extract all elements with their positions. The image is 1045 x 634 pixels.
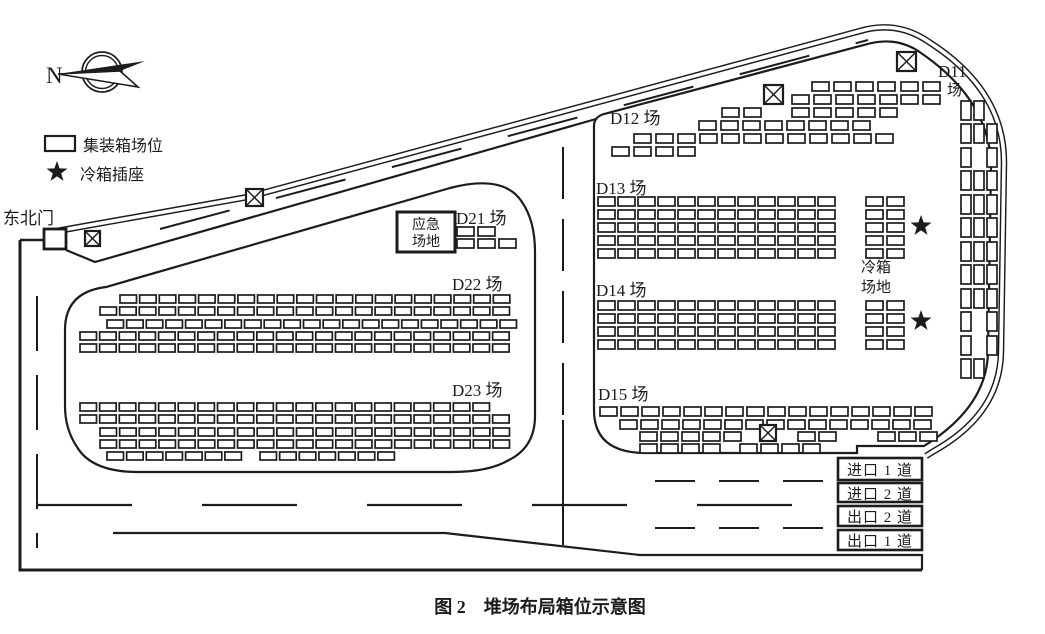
container-slot [237,403,254,411]
container-slot [974,124,984,143]
container-slot [620,420,637,429]
container-slot [139,344,156,352]
container-slot [830,420,847,429]
container-slot [618,223,635,232]
container-slot [179,428,196,436]
container-slot [658,327,675,336]
container-slot [316,440,333,448]
container-slot [100,428,117,436]
container-slot [758,327,775,336]
container-slot [277,332,294,340]
container-slot [335,332,352,340]
container-slot [641,420,658,429]
container-slot [316,332,333,340]
container-slot [974,265,984,284]
container-slot [453,332,470,340]
yard-label-d15: D15 场 [598,385,649,404]
container-slot [277,307,294,315]
container-slot [961,101,971,120]
container-slot [738,327,755,336]
container-slot [738,314,755,323]
container-slot [375,440,392,448]
reefer-area-label-line2: 场地 [861,279,891,296]
container-slot [277,428,294,436]
emergency-area-label-line1: 应急 [412,216,440,233]
container-slot [434,344,451,352]
container-slot [493,344,510,352]
container-slot [987,265,997,284]
container-slot-grids [80,82,997,460]
container-slot [178,403,195,411]
container-slot [612,147,629,156]
container-slot [698,301,715,310]
container-slot [866,327,883,336]
container-slot [473,307,490,315]
container-slot [778,301,795,310]
container-slot [818,236,835,245]
container-slot [836,108,853,117]
container-slot [139,307,156,315]
container-slot [698,327,715,336]
container-slot [658,301,675,310]
container-slot [454,295,471,303]
container-slot [798,236,815,245]
container-slot [923,95,940,104]
container-slot [478,227,495,236]
northeast-gate-label: 东北门 [3,209,54,228]
container-slot [119,332,136,340]
container-slot [355,440,372,448]
container-slot [434,440,451,448]
container-slot [662,420,679,429]
container-slot [878,82,895,91]
container-slot [402,320,419,328]
container-slot [987,289,997,308]
container-slot [901,95,918,104]
container-slot [887,314,904,323]
container-slot [434,415,451,423]
container-slot [395,295,412,303]
container-slot [638,314,655,323]
container-slot [915,407,932,416]
container-slot [887,249,904,258]
container-slot [974,289,984,308]
yard-label-d14: D14 场 [596,281,647,300]
container-slot [598,314,615,323]
container-slot [758,197,775,206]
container-slot [987,218,997,237]
container-slot [198,307,215,315]
container-slot [375,415,392,423]
container-slot [119,344,136,352]
container-slot [323,320,340,328]
container-slot [499,239,516,248]
container-slot [218,415,235,423]
yard-label-d23: D23 场 [452,381,503,400]
container-slot [178,332,195,340]
container-slot [866,340,883,349]
container-slot [434,295,451,303]
container-slot [257,403,274,411]
container-slot [218,307,235,315]
container-slot [778,314,795,323]
container-slot [974,359,984,378]
container-slot [454,307,471,315]
container-slot [100,403,117,411]
container-slot [277,344,294,352]
container-slot [818,327,835,336]
container-slot [722,134,739,143]
container-slot [818,210,835,219]
yard-boxes-d13 [598,197,835,258]
yard-layout-figure: 进口 1 道 进口 2 道 出口 2 道 出口 1 道 N 集装箱场位 冷箱插座… [0,0,1045,634]
container-slot [854,134,871,143]
container-slot [678,223,695,232]
container-slot [810,134,827,143]
container-slot [355,332,372,340]
container-slot [638,236,655,245]
checkpoint-crossed-box-icon [246,189,263,206]
container-slot [914,420,931,429]
container-slot [80,403,97,411]
container-slot [159,344,176,352]
container-slot [758,301,775,310]
container-slot [355,403,372,411]
container-slot [139,403,156,411]
compass-rose: N [46,52,145,92]
container-slot [987,242,997,261]
container-slot [787,121,804,130]
container-slot [818,197,835,206]
container-slot [858,108,875,117]
container-slot [493,295,510,303]
container-slot [453,415,470,423]
container-slot [316,428,333,436]
container-slot [179,307,196,315]
container-slot [718,236,735,245]
container-slot [120,295,137,303]
container-slot [600,407,617,416]
container-slot [678,236,695,245]
compass-arrow-light-blade [58,71,138,87]
container-slot [798,223,815,232]
container-slot [961,148,971,167]
container-slot [778,236,795,245]
container-slot [277,415,294,423]
container-slot [782,444,799,453]
container-slot [225,320,242,328]
yard-label-d21: D21 场 [456,209,507,228]
container-slot [473,332,490,340]
container-slot [382,320,399,328]
checkpoint-crossed-box-icon [760,425,776,441]
container-slot [355,344,372,352]
yard-label-d12: D12 场 [610,109,661,128]
container-slot [186,452,203,460]
container-slot [277,403,294,411]
container-slot [500,320,517,328]
container-slot [461,320,478,328]
container-slot [834,82,851,91]
container-slot [718,340,735,349]
checkpoint-crossed-box-icon [764,85,783,104]
container-slot [640,444,657,453]
container-slot [961,336,971,355]
container-slot [100,440,117,448]
container-slot [658,340,675,349]
container-slot [788,420,805,429]
container-slot [792,108,809,117]
container-slot [355,428,372,436]
container-slot [618,340,635,349]
lane-label-in2: 进口 2 道 [847,486,913,503]
container-slot [894,407,911,416]
yard-boxes-d14 [598,301,835,349]
container-slot [744,134,761,143]
container-slot [317,295,334,303]
northeast-gate-box [44,229,66,249]
container-slot [159,332,176,340]
container-slot [260,452,277,460]
container-slot [920,432,937,441]
container-slot [678,327,695,336]
container-slot [722,108,739,117]
container-slot [758,340,775,349]
container-slot [703,444,720,453]
container-slot [738,210,755,219]
container-slot [375,344,392,352]
container-slot [434,332,451,340]
legend-star-icon [47,161,68,181]
container-slot [718,197,735,206]
container-slot [414,440,431,448]
container-slot [473,403,490,411]
container-slot [718,314,735,323]
container-slot [768,407,785,416]
yard-boxes-d21 [457,227,516,248]
container-slot [718,210,735,219]
container-slot [758,223,775,232]
container-slot [100,307,117,315]
container-slot [866,197,883,206]
container-slot [453,344,470,352]
container-slot [887,236,904,245]
legend-container-label: 集装箱场位 [83,137,163,155]
container-slot [866,236,883,245]
container-slot [394,403,411,411]
container-slot [335,344,352,352]
container-slot [798,301,815,310]
container-slot [258,295,275,303]
container-slot [186,320,203,328]
container-slot [493,332,510,340]
container-slot [316,307,333,315]
container-slot [866,223,883,232]
container-slot [683,420,700,429]
container-slot [961,124,971,143]
reefer-socket-star-icon [911,215,932,235]
container-slot [319,452,336,460]
container-slot [395,307,412,315]
container-slot [765,121,782,130]
container-slot [961,171,971,190]
container-slot [218,440,235,448]
container-slot [296,403,313,411]
container-slot [743,121,760,130]
container-slot [237,344,254,352]
container-slot [618,197,635,206]
container-slot [80,332,97,340]
legend: 集装箱场位 冷箱插座 [45,136,163,184]
container-slot [179,295,196,303]
container-slot [218,295,235,303]
container-slot [414,344,431,352]
container-slot [974,101,984,120]
container-slot [414,307,431,315]
container-slot [778,327,795,336]
container-slot [638,327,655,336]
container-slot [358,452,375,460]
container-slot [80,344,97,352]
container-slot [159,415,176,423]
checkpoint-crossed-box-icon [85,231,100,246]
container-slot [678,147,695,156]
container-slot [893,420,910,429]
container-slot [139,332,156,340]
container-slot [618,301,635,310]
container-slot [296,332,313,340]
container-slot [362,320,379,328]
container-slot [718,223,735,232]
container-slot [264,320,281,328]
container-slot [356,295,373,303]
container-slot [678,249,695,258]
container-slot [704,420,721,429]
container-slot [146,452,163,460]
yard-boxes-reefer2 [866,301,904,349]
reefer-socket-star-icon [911,310,932,330]
container-slot [238,307,255,315]
legend-reefer-label: 冷箱插座 [80,166,144,184]
container-slot [698,210,715,219]
container-slot [873,407,890,416]
figure-caption: 图 2 堆场布局箱位示意图 [434,596,646,617]
container-slot [198,403,215,411]
container-slot [798,327,815,336]
container-slot [297,428,314,436]
container-slot [480,320,497,328]
container-slot [866,210,883,219]
container-slot [899,432,916,441]
container-slot [166,452,183,460]
container-slot [414,415,431,423]
container-slot [140,295,157,303]
container-slot [218,332,235,340]
container-slot [726,407,743,416]
container-slot [414,332,431,340]
container-slot [987,148,997,167]
container-slot [119,403,136,411]
container-slot [159,307,176,315]
container-slot [218,428,235,436]
container-slot [866,314,883,323]
container-slot [598,340,615,349]
container-slot [375,403,392,411]
container-slot [810,407,827,416]
container-slot [858,95,875,104]
container-slot [789,407,806,416]
container-slot [441,320,458,328]
container-slot [139,415,156,423]
container-slot [218,344,235,352]
container-slot [700,134,717,143]
container-slot [238,295,255,303]
container-slot [718,301,735,310]
container-slot [257,440,274,448]
container-slot [658,249,675,258]
container-slot [598,210,615,219]
container-slot [901,82,918,91]
container-slot [355,307,372,315]
container-slot [257,332,274,340]
container-slot [682,432,699,441]
container-slot [638,210,655,219]
container-slot [277,440,294,448]
container-slot [280,452,297,460]
container-slot [120,428,136,436]
container-slot [395,440,412,448]
container-slot [974,242,984,261]
container-slot [987,124,997,143]
yard-label-d13: D13 场 [596,179,647,198]
container-slot [738,197,755,206]
container-slot [457,239,474,248]
yard-label-d11-line1: D11 [938,62,967,81]
container-slot [718,249,735,258]
container-slot [744,108,761,117]
container-slot [961,195,971,214]
container-slot [598,249,615,258]
container-slot [887,197,904,206]
container-slot [198,344,215,352]
container-slot [818,340,835,349]
container-slot [598,301,615,310]
container-slot [166,320,183,328]
container-slot [974,218,984,237]
container-slot [421,320,438,328]
container-slot [758,236,775,245]
container-slot [453,403,470,411]
container-slot [618,210,635,219]
container-slot [355,415,372,423]
container-slot [598,236,615,245]
container-slot [198,440,215,448]
container-slot [335,403,352,411]
container-slot [139,440,156,448]
container-slot [678,314,695,323]
container-slot [658,223,675,232]
container-slot [778,197,795,206]
container-slot [107,320,124,328]
container-slot [878,432,895,441]
container-slot [339,452,356,460]
emergency-area-label-line2: 场地 [412,234,440,250]
yard-layout-diagram: 进口 1 道 进口 2 道 出口 2 道 出口 1 道 N 集装箱场位 冷箱插座… [0,0,1045,634]
compass-north-label: N [46,63,63,88]
container-slot [658,314,675,323]
container-slot [618,236,635,245]
container-slot [698,223,715,232]
